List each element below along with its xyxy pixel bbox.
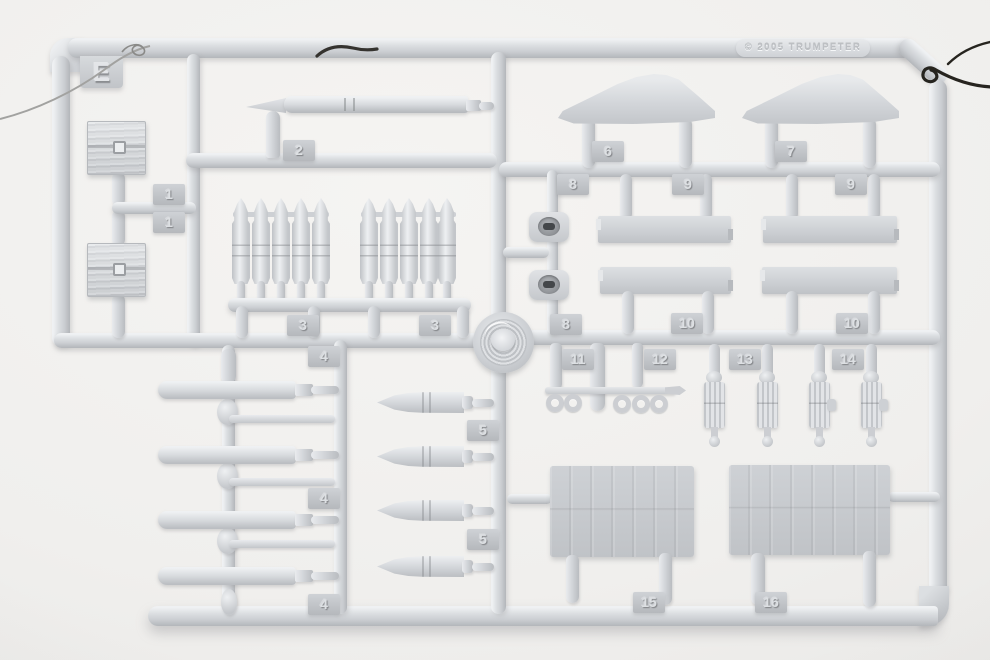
wire-twist-on-rail	[317, 47, 377, 56]
wire-twist-left	[122, 45, 145, 56]
sprue-photo: E © 2005 TRUMPETER	[0, 0, 990, 660]
black-wire-right	[923, 68, 990, 87]
hanging-wire-left	[0, 46, 150, 119]
wires-overlay	[0, 0, 990, 660]
black-wire-right-tail	[948, 42, 990, 64]
